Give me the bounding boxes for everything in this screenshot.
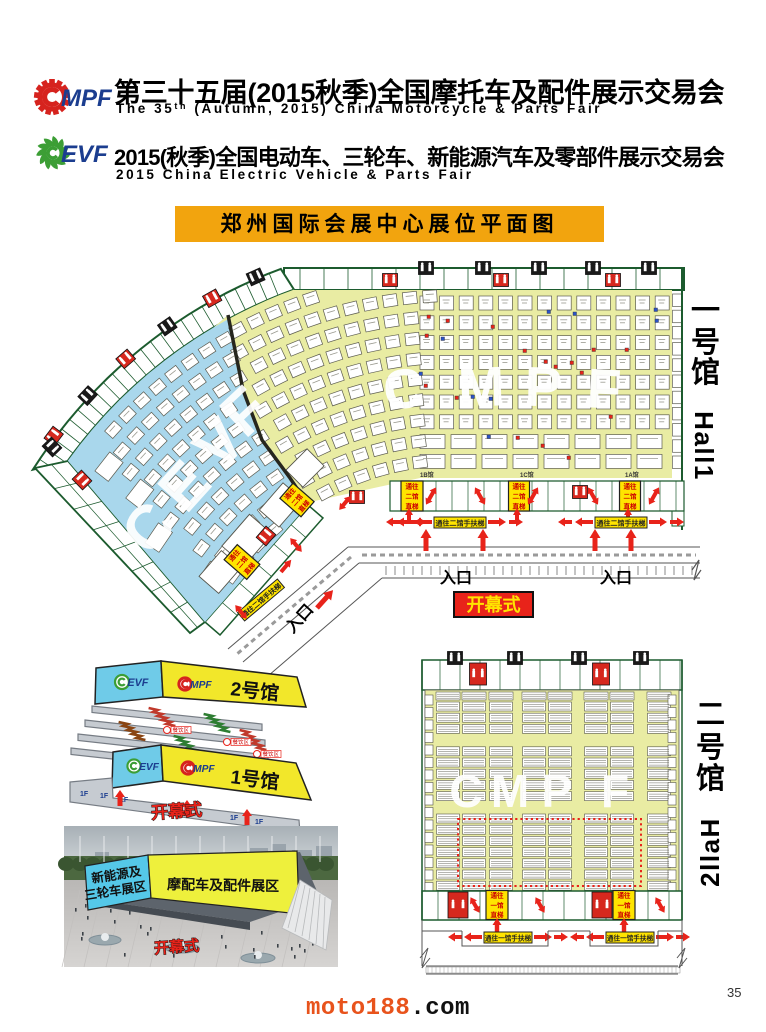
svg-text:P: P	[524, 355, 562, 419]
svg-text:通往二馆手扶梯: 通往二馆手扶梯	[436, 519, 485, 528]
svg-text:通往: 通往	[624, 481, 638, 490]
svg-text:1F: 1F	[230, 815, 239, 822]
svg-text:直梯: 直梯	[618, 910, 632, 919]
svg-text:MPF: MPF	[193, 764, 215, 775]
svg-text:通往一馆手扶梯: 通往一馆手扶梯	[607, 934, 654, 943]
svg-text:通往一馆手扶梯: 通往一馆手扶梯	[485, 934, 532, 943]
svg-text:1F: 1F	[100, 793, 109, 800]
svg-text:入口: 入口	[440, 569, 472, 587]
svg-text:通往: 通往	[491, 891, 505, 900]
svg-text:二馆: 二馆	[624, 491, 638, 500]
svg-text:通往: 通往	[618, 891, 632, 900]
svg-text:1F: 1F	[255, 819, 264, 826]
svg-text:餐饮区: 餐饮区	[233, 738, 250, 746]
svg-text:通往: 通往	[513, 481, 527, 490]
svg-text:MPF: MPF	[190, 680, 212, 691]
svg-text:开幕式: 开幕式	[467, 594, 521, 615]
svg-text:C: C	[449, 765, 482, 817]
svg-text:F: F	[601, 765, 629, 817]
svg-text:餐饮区: 餐饮区	[173, 726, 190, 734]
svg-text:M: M	[491, 765, 529, 817]
svg-text:二馆: 二馆	[513, 491, 527, 500]
svg-text:直梯: 直梯	[491, 910, 505, 919]
svg-text:M: M	[457, 354, 506, 419]
svg-text:通往: 通往	[406, 481, 420, 490]
svg-text:1F: 1F	[80, 791, 89, 798]
svg-text:1A馆: 1A馆	[625, 471, 639, 479]
svg-text:F: F	[585, 356, 622, 421]
svg-text:一馆: 一馆	[491, 900, 505, 909]
svg-text:入口: 入口	[600, 569, 632, 587]
svg-text:C: C	[380, 355, 426, 421]
svg-text:直梯: 直梯	[624, 501, 638, 510]
svg-text:通往二馆手扶梯: 通往二馆手扶梯	[597, 519, 646, 528]
svg-text:EVF: EVF	[127, 677, 148, 689]
svg-text:餐饮区: 餐饮区	[263, 750, 280, 758]
svg-text:开幕式: 开幕式	[154, 936, 200, 957]
svg-text:二馆: 二馆	[406, 491, 420, 500]
svg-text:一馆: 一馆	[618, 900, 632, 909]
svg-text:入口: 入口	[282, 601, 317, 637]
svg-text:直梯: 直梯	[513, 501, 527, 510]
svg-text:开幕式: 开幕式	[150, 799, 202, 823]
svg-text:直梯: 直梯	[406, 501, 420, 510]
svg-text:P: P	[542, 765, 573, 817]
svg-text:1B馆: 1B馆	[420, 471, 434, 479]
svg-text:EVF: EVF	[139, 762, 160, 773]
svg-text:摩配车及配件展区: 摩配车及配件展区	[167, 876, 279, 894]
svg-text:1C馆: 1C馆	[520, 471, 534, 479]
